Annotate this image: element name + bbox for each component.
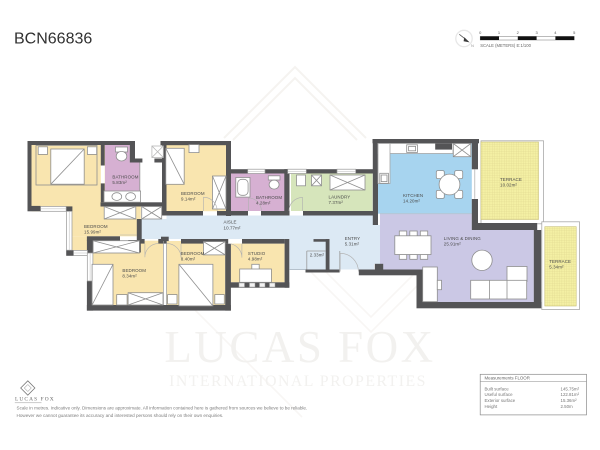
svg-text:122.81m²: 122.81m² — [561, 392, 580, 397]
svg-text:KITCHEN: KITCHEN — [403, 193, 423, 198]
svg-text:145.75m²: 145.75m² — [561, 386, 580, 391]
svg-text:15.99m²: 15.99m² — [84, 230, 101, 235]
svg-text:Measurements FLOOR: Measurements FLOOR — [485, 376, 530, 381]
svg-text:LUCAS FOX: LUCAS FOX — [15, 396, 55, 402]
svg-text:5.83m²: 5.83m² — [112, 180, 127, 185]
svg-text:8.40m²: 8.40m² — [181, 257, 196, 262]
svg-text:BEDROOM: BEDROOM — [181, 191, 205, 196]
svg-text:LAUNDRY: LAUNDRY — [329, 194, 351, 199]
svg-text:TERRACE: TERRACE — [549, 259, 571, 264]
svg-text:Height: Height — [485, 404, 498, 409]
svg-text:BATHROOM: BATHROOM — [256, 195, 282, 200]
svg-text:STUDIO: STUDIO — [248, 251, 266, 256]
svg-text:INTERNATIONAL PROPERTIES: INTERNATIONAL PROPERTIES — [169, 373, 427, 390]
svg-text:15.36m²: 15.36m² — [561, 398, 578, 403]
svg-text:5.34m²: 5.34m² — [549, 265, 564, 270]
svg-text:LIVING & DINING: LIVING & DINING — [444, 236, 481, 241]
svg-text:2.33m²: 2.33m² — [310, 252, 325, 257]
svg-text:N: N — [471, 43, 474, 48]
svg-text:TERRACE: TERRACE — [500, 177, 522, 182]
svg-text:10.02m²: 10.02m² — [500, 183, 517, 188]
svg-text:25.91m²: 25.91m² — [444, 242, 461, 247]
svg-text:4.98m²: 4.98m² — [248, 257, 263, 262]
svg-text:Scale in metres. Indicative on: Scale in metres. Indicative only. Dimens… — [17, 406, 308, 411]
svg-text:9.14m²: 9.14m² — [181, 197, 196, 202]
svg-text:BEDROOM: BEDROOM — [84, 224, 108, 229]
svg-text:14.20m²: 14.20m² — [403, 198, 420, 203]
svg-text:Useful surface: Useful surface — [485, 392, 514, 397]
svg-text:Exterior surface: Exterior surface — [485, 398, 516, 403]
svg-text:Built surface: Built surface — [485, 386, 510, 391]
svg-text:However we cannot guarantee it: However we cannot guarantee its accuracy… — [17, 413, 224, 418]
svg-text:BEDROOM: BEDROOM — [181, 251, 205, 256]
svg-text:7.37m²: 7.37m² — [329, 200, 344, 205]
svg-text:SCALE (METERS) E:1/100: SCALE (METERS) E:1/100 — [480, 43, 531, 48]
svg-text:BATHROOM: BATHROOM — [112, 175, 138, 180]
svg-text:5.31m²: 5.31m² — [345, 242, 360, 247]
svg-text:BEDROOM: BEDROOM — [122, 268, 146, 273]
svg-text:AISLE: AISLE — [224, 220, 237, 225]
svg-text:2.50m: 2.50m — [561, 404, 574, 409]
svg-text:10.77m²: 10.77m² — [224, 226, 241, 231]
svg-text:8.34m²: 8.34m² — [122, 274, 137, 279]
svg-text:4.28m²: 4.28m² — [256, 201, 271, 206]
svg-text:LUCAS FOX: LUCAS FOX — [164, 322, 435, 372]
svg-text:BCN66836: BCN66836 — [14, 31, 92, 48]
svg-text:ENTRY: ENTRY — [345, 236, 360, 241]
